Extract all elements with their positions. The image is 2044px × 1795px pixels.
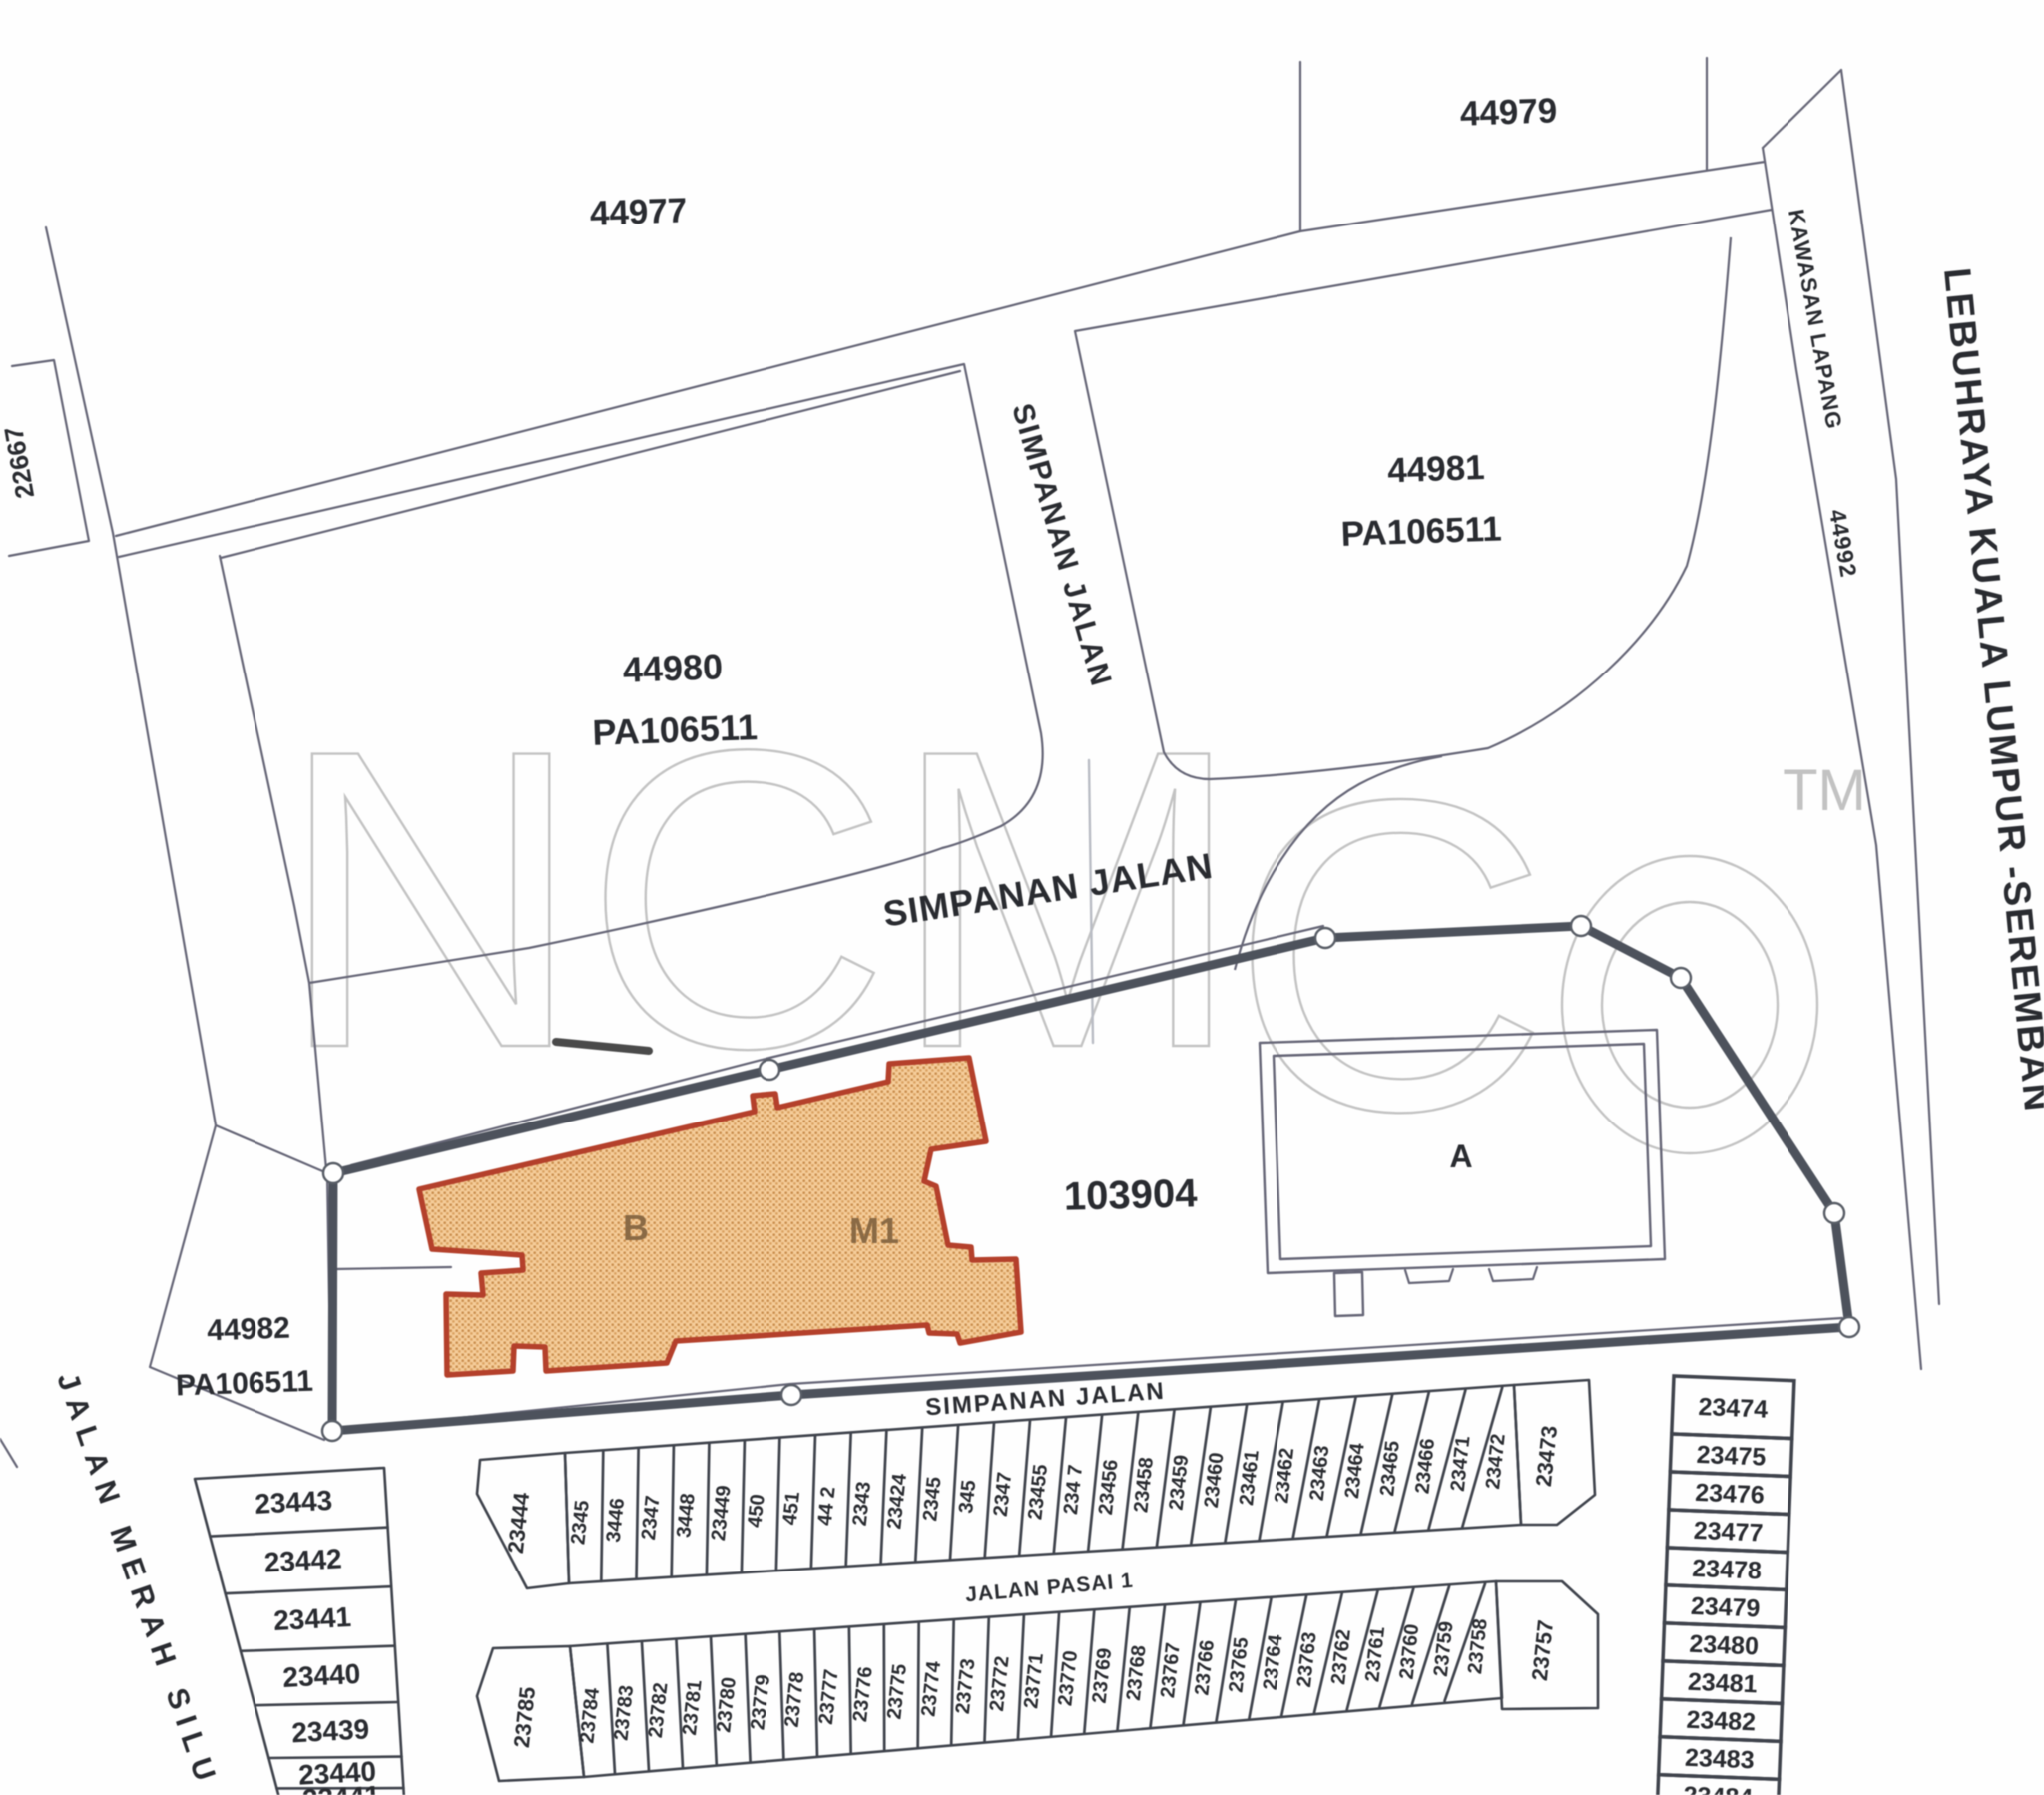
svg-text:23481: 23481	[1687, 1668, 1758, 1699]
svg-text:PA106511: PA106511	[175, 1365, 313, 1403]
svg-text:PA106511: PA106511	[592, 706, 759, 753]
svg-text:44977: 44977	[589, 191, 688, 232]
svg-text:23443: 23443	[255, 1485, 333, 1520]
svg-text:2347: 2347	[638, 1495, 665, 1542]
svg-text:A: A	[1449, 1138, 1472, 1174]
svg-text:23479: 23479	[1690, 1592, 1761, 1623]
svg-text:23439: 23439	[291, 1713, 370, 1748]
svg-text:450: 450	[744, 1493, 768, 1528]
svg-text:3446: 3446	[603, 1497, 630, 1544]
svg-text:TM: TM	[1783, 758, 1866, 823]
svg-text:2347: 2347	[990, 1471, 1017, 1518]
svg-text:23483: 23483	[1685, 1744, 1756, 1775]
svg-text:23442: 23442	[263, 1543, 342, 1577]
svg-text:44980: 44980	[622, 646, 723, 689]
svg-text:23480: 23480	[1689, 1630, 1760, 1661]
svg-text:44981: 44981	[1387, 448, 1486, 490]
svg-text:23484: 23484	[1683, 1782, 1754, 1795]
svg-text:M1: M1	[849, 1210, 899, 1251]
svg-text:23441: 23441	[272, 1601, 351, 1636]
svg-text:23478: 23478	[1692, 1555, 1763, 1585]
svg-text:23482: 23482	[1686, 1706, 1757, 1737]
svg-text:2343: 2343	[849, 1481, 876, 1528]
svg-text:44 2: 44 2	[814, 1486, 840, 1527]
svg-text:23475: 23475	[1696, 1441, 1767, 1472]
svg-text:3448: 3448	[673, 1492, 700, 1539]
svg-text:23474: 23474	[1698, 1393, 1769, 1424]
svg-text:B: B	[623, 1207, 649, 1248]
svg-text:23476: 23476	[1695, 1479, 1766, 1510]
svg-text:23440: 23440	[282, 1658, 361, 1693]
svg-text:PA106511: PA106511	[1340, 509, 1502, 554]
svg-text:103904: 103904	[1063, 1171, 1198, 1218]
svg-text:2345: 2345	[919, 1476, 946, 1523]
svg-text:44982: 44982	[207, 1312, 291, 1348]
svg-text:C: C	[1230, 708, 1550, 1203]
svg-text:23477: 23477	[1693, 1517, 1764, 1548]
svg-text:44979: 44979	[1459, 91, 1558, 133]
svg-text:345: 345	[955, 1479, 980, 1514]
svg-text:451: 451	[779, 1491, 804, 1526]
svg-text:2345: 2345	[567, 1499, 594, 1546]
